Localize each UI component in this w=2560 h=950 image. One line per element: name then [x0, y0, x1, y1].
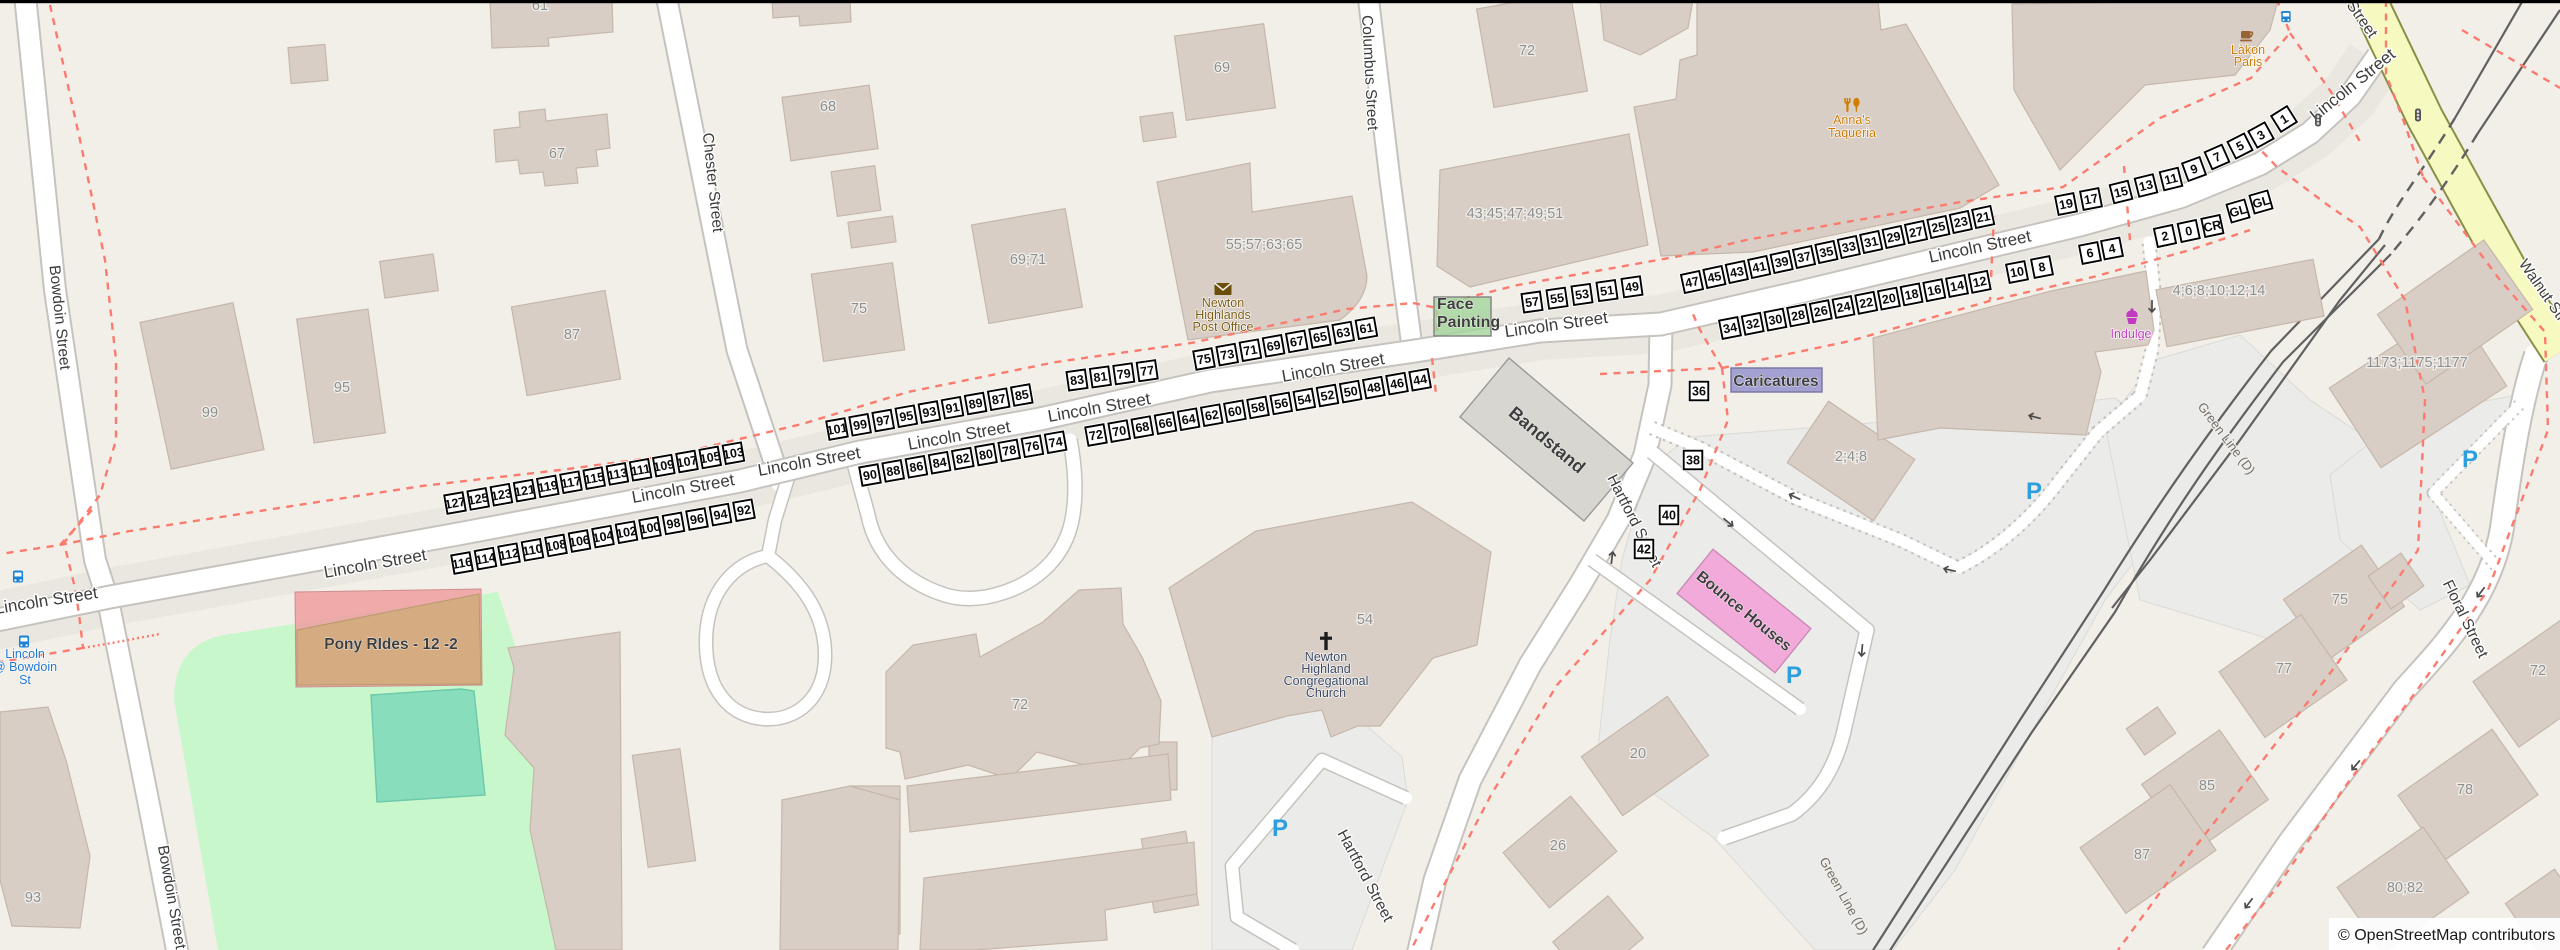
svg-text:75: 75 [2332, 592, 2348, 608]
svg-text:72: 72 [2530, 663, 2546, 679]
svg-text:52: 52 [1319, 388, 1335, 404]
svg-text:Taqueria: Taqueria [1828, 126, 1876, 140]
svg-text:20: 20 [1630, 746, 1646, 762]
svg-text:41: 41 [1751, 259, 1768, 276]
svg-text:72: 72 [1519, 43, 1535, 59]
svg-text:Pony RIdes - 12 -2: Pony RIdes - 12 -2 [324, 636, 458, 653]
svg-text:47: 47 [1684, 274, 1701, 291]
svg-text:30: 30 [1767, 312, 1783, 328]
svg-text:55;57;63;65: 55;57;63;65 [1226, 237, 1303, 253]
svg-text:84: 84 [932, 455, 948, 471]
svg-text:26: 26 [1813, 303, 1829, 319]
svg-text:42: 42 [1637, 542, 1651, 556]
svg-text:17: 17 [2083, 191, 2099, 207]
svg-text:53: 53 [1574, 287, 1590, 303]
svg-text:28: 28 [1790, 307, 1806, 323]
svg-text:85: 85 [2199, 778, 2215, 794]
svg-text:69: 69 [1214, 60, 1230, 76]
svg-text:68: 68 [820, 99, 836, 115]
svg-text:88: 88 [885, 463, 901, 479]
svg-text:40: 40 [1662, 508, 1676, 522]
svg-text:90: 90 [862, 467, 878, 483]
svg-text:55: 55 [1549, 291, 1565, 307]
svg-text:1173;1175;1177: 1173;1175;1177 [2366, 355, 2468, 371]
svg-text:63: 63 [1335, 325, 1351, 341]
svg-text:43;45;47;49;51: 43;45;47;49;51 [1467, 206, 1564, 222]
svg-text:58: 58 [1250, 400, 1266, 416]
svg-text:77: 77 [2276, 661, 2292, 677]
svg-text:St: St [19, 673, 31, 687]
svg-text:73: 73 [1219, 347, 1235, 363]
svg-text:70: 70 [1111, 423, 1127, 439]
svg-text:P: P [2026, 478, 2042, 505]
svg-text:Anna's: Anna's [1833, 113, 1871, 127]
svg-text:61: 61 [1358, 320, 1374, 336]
svg-text:@ Bowdoin: @ Bowdoin [0, 660, 57, 674]
svg-text:82: 82 [955, 451, 971, 467]
svg-text:93: 93 [25, 890, 41, 906]
svg-text:68: 68 [1134, 419, 1150, 435]
svg-text:54: 54 [1357, 612, 1373, 628]
svg-text:60: 60 [1227, 403, 1243, 419]
svg-text:56: 56 [1273, 396, 1289, 412]
svg-text:87: 87 [2134, 847, 2150, 863]
svg-text:80: 80 [978, 447, 994, 463]
svg-text:95: 95 [334, 380, 350, 396]
svg-text:18: 18 [1903, 286, 1919, 302]
svg-text:Indulge: Indulge [2110, 327, 2151, 341]
svg-text:37: 37 [1796, 249, 1813, 266]
svg-text:69;71: 69;71 [1010, 252, 1046, 268]
svg-text:94: 94 [712, 507, 728, 523]
svg-text:39: 39 [1773, 254, 1790, 271]
svg-text:89: 89 [968, 396, 984, 412]
svg-text:49: 49 [1624, 279, 1640, 295]
svg-text:22: 22 [1858, 295, 1874, 311]
svg-text:46: 46 [1389, 376, 1405, 392]
svg-text:4;6;8;10;12;14: 4;6;8;10;12;14 [2173, 283, 2266, 299]
svg-text:83: 83 [1069, 372, 1085, 388]
svg-text:33: 33 [1841, 239, 1858, 256]
svg-text:76: 76 [1024, 438, 1040, 454]
svg-text:P: P [1272, 815, 1288, 842]
svg-text:99: 99 [202, 405, 218, 421]
svg-text:Caricatures: Caricatures [1733, 373, 1818, 390]
svg-text:10: 10 [2009, 264, 2025, 280]
svg-text:26: 26 [1550, 838, 1566, 854]
svg-text:Lincoln: Lincoln [5, 647, 45, 661]
svg-text:75: 75 [1196, 351, 1212, 367]
svg-text:86: 86 [908, 459, 924, 475]
svg-text:Church: Church [1306, 686, 1346, 700]
svg-text:96: 96 [689, 511, 705, 527]
svg-text:69: 69 [1266, 338, 1282, 354]
svg-text:50: 50 [1343, 384, 1359, 400]
svg-text:P: P [2462, 446, 2478, 473]
svg-text:99: 99 [852, 417, 868, 433]
svg-text:92: 92 [736, 502, 752, 518]
svg-text:Post Office: Post Office [1193, 320, 1254, 334]
svg-text:2;4;8: 2;4;8 [1835, 449, 1867, 465]
svg-text:32: 32 [1745, 316, 1761, 332]
svg-text:44: 44 [1412, 372, 1428, 388]
svg-text:19: 19 [2058, 196, 2074, 212]
svg-text:14: 14 [1949, 278, 1965, 294]
svg-text:16: 16 [1926, 282, 1942, 298]
svg-text:12: 12 [1972, 274, 1988, 290]
svg-text:66: 66 [1157, 415, 1173, 431]
svg-text:P: P [1786, 662, 1802, 689]
svg-text:Paris: Paris [2234, 55, 2262, 69]
svg-text:74: 74 [1048, 434, 1064, 450]
svg-text:34: 34 [1722, 320, 1738, 336]
svg-text:75: 75 [851, 301, 867, 317]
svg-text:72: 72 [1088, 427, 1104, 443]
svg-text:31: 31 [1863, 234, 1880, 251]
svg-text:98: 98 [665, 516, 681, 532]
svg-text:35: 35 [1818, 244, 1835, 261]
svg-text:Painting: Painting [1437, 314, 1500, 331]
svg-text:87: 87 [564, 327, 580, 343]
svg-text:27: 27 [1908, 224, 1925, 241]
svg-text:Face: Face [1437, 296, 1474, 313]
svg-text:65: 65 [1312, 329, 1328, 345]
svg-text:87: 87 [991, 391, 1007, 407]
svg-text:64: 64 [1181, 411, 1197, 427]
svg-text:67: 67 [549, 146, 565, 162]
svg-text:57: 57 [1524, 294, 1540, 310]
svg-text:78: 78 [2457, 782, 2473, 798]
svg-text:77: 77 [1139, 363, 1155, 379]
svg-text:23: 23 [1953, 214, 1970, 231]
svg-text:43: 43 [1729, 264, 1746, 281]
svg-text:72: 72 [1012, 697, 1028, 713]
svg-text:67: 67 [1289, 334, 1305, 350]
svg-text:36: 36 [1692, 384, 1706, 398]
svg-text:25: 25 [1930, 219, 1947, 236]
svg-text:93: 93 [921, 404, 937, 420]
svg-text:54: 54 [1296, 392, 1312, 408]
svg-text:81: 81 [1093, 369, 1109, 385]
svg-text:29: 29 [1885, 229, 1902, 246]
svg-text:45: 45 [1706, 269, 1723, 286]
svg-text:20: 20 [1881, 291, 1897, 307]
svg-text:38: 38 [1686, 453, 1700, 467]
svg-text:97: 97 [875, 413, 891, 429]
svg-text:80;82: 80;82 [2387, 880, 2423, 896]
svg-text:48: 48 [1366, 380, 1382, 396]
svg-text:62: 62 [1204, 407, 1220, 423]
svg-text:79: 79 [1116, 366, 1132, 382]
svg-text:91: 91 [944, 400, 960, 416]
svg-text:78: 78 [1001, 443, 1017, 459]
svg-text:© OpenStreetMap contributors: © OpenStreetMap contributors [2338, 927, 2555, 944]
svg-text:24: 24 [1835, 299, 1851, 315]
svg-text:51: 51 [1599, 283, 1615, 299]
svg-text:95: 95 [898, 408, 914, 424]
svg-text:21: 21 [1975, 209, 1992, 226]
svg-text:85: 85 [1014, 387, 1030, 403]
svg-text:71: 71 [1242, 342, 1258, 358]
